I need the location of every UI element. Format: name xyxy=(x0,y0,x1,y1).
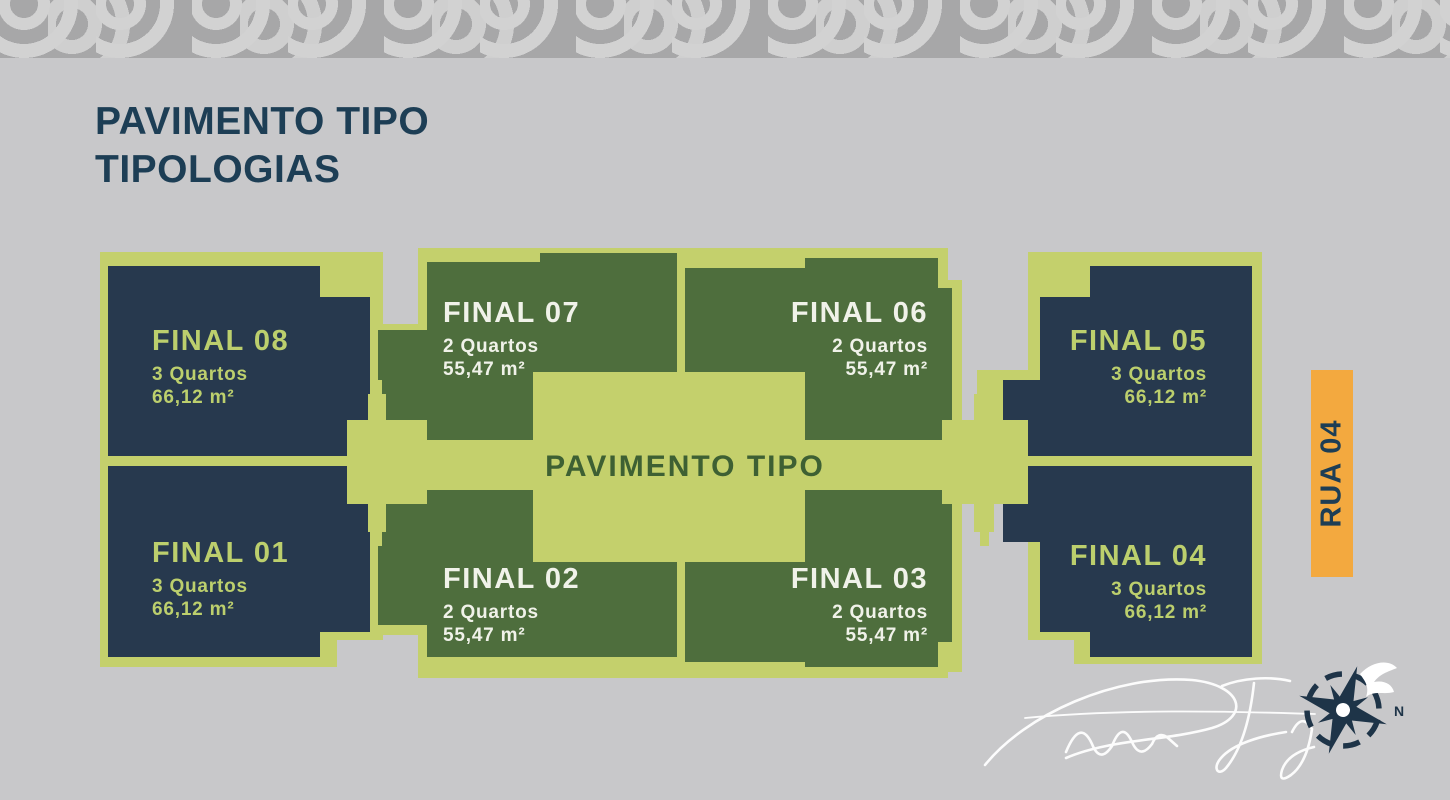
unit-final-08-shape xyxy=(108,266,320,297)
corridor-stub xyxy=(974,504,994,532)
unit-name: FINAL 05 xyxy=(967,325,1207,358)
unit-rooms: 3 Quartos xyxy=(967,578,1207,601)
corridor-stub xyxy=(368,504,386,532)
unit-final-02-label: FINAL 02 2 Quartos 55,47 m² xyxy=(443,563,683,647)
unit-name: FINAL 07 xyxy=(443,297,683,330)
corridor-tab-left xyxy=(347,420,427,504)
unit-area: 66,12 m² xyxy=(152,598,392,621)
street-label: RUA 04 xyxy=(1311,370,1353,577)
corridor-label: PAVIMENTO TIPO xyxy=(455,450,915,484)
unit-rooms: 3 Quartos xyxy=(152,363,392,386)
unit-name: FINAL 06 xyxy=(688,297,928,330)
unit-final-01-label: FINAL 01 3 Quartos 66,12 m² xyxy=(152,537,392,621)
unit-rooms: 2 Quartos xyxy=(443,601,683,624)
page-title-line1: PAVIMENTO TIPO xyxy=(95,100,429,143)
unit-rooms: 3 Quartos xyxy=(152,575,392,598)
unit-rooms: 2 Quartos xyxy=(688,335,928,358)
unit-final-05-shape xyxy=(1090,266,1252,297)
page: PAVIMENTO TIPO TIPOLOGIAS xyxy=(0,0,1450,800)
plate-notch xyxy=(337,640,383,667)
unit-final-03-shape xyxy=(938,490,952,642)
compass-icon: N xyxy=(1290,656,1410,774)
unit-area: 55,47 m² xyxy=(688,358,928,381)
unit-area: 55,47 m² xyxy=(443,624,683,647)
unit-area: 55,47 m² xyxy=(443,358,683,381)
unit-final-08-label: FINAL 08 3 Quartos 66,12 m² xyxy=(152,325,392,409)
unit-area: 66,12 m² xyxy=(967,601,1207,624)
unit-name: FINAL 02 xyxy=(443,563,683,596)
unit-final-05-label: FINAL 05 3 Quartos 66,12 m² xyxy=(967,325,1207,409)
street-label-text: RUA 04 xyxy=(1316,419,1349,527)
unit-final-06-shape xyxy=(938,288,952,440)
unit-rooms: 2 Quartos xyxy=(688,601,928,624)
page-title-line2: TIPOLOGIAS xyxy=(95,148,341,191)
unit-final-03-label: FINAL 03 2 Quartos 55,47 m² xyxy=(688,563,928,647)
compass-n-label: N xyxy=(1394,703,1404,719)
corridor-tab-right xyxy=(942,420,1028,504)
unit-area: 66,12 m² xyxy=(967,386,1207,409)
unit-name: FINAL 01 xyxy=(152,537,392,570)
unit-rooms: 3 Quartos xyxy=(967,363,1207,386)
unit-name: FINAL 03 xyxy=(688,563,928,596)
unit-name: FINAL 08 xyxy=(152,325,392,358)
unit-area: 66,12 m² xyxy=(152,386,392,409)
decor-arc-pattern xyxy=(0,0,1450,58)
unit-final-07-label: FINAL 07 2 Quartos 55,47 m² xyxy=(443,297,683,381)
unit-rooms: 2 Quartos xyxy=(443,335,683,358)
bird-icon xyxy=(1360,662,1397,697)
unit-final-07-shape xyxy=(540,253,677,262)
page-title: PAVIMENTO TIPO TIPOLOGIAS xyxy=(95,98,429,194)
unit-final-01-shape xyxy=(108,632,320,657)
unit-name: FINAL 04 xyxy=(967,540,1207,573)
unit-area: 55,47 m² xyxy=(688,624,928,647)
unit-final-04-label: FINAL 04 3 Quartos 66,12 m² xyxy=(967,540,1207,624)
unit-final-06-label: FINAL 06 2 Quartos 55,47 m² xyxy=(688,297,928,381)
